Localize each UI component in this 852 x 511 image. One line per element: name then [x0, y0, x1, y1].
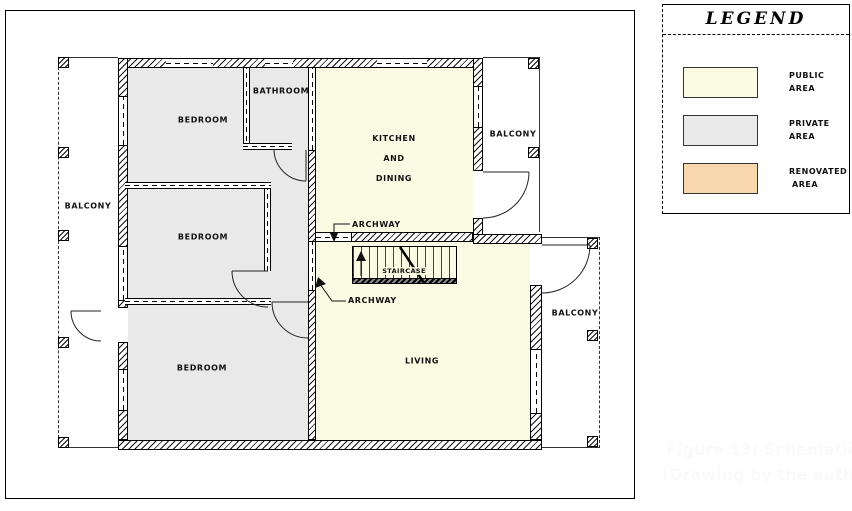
legend-item-public: PUBLIC AREA: [683, 67, 843, 99]
legend-swatch-public: [683, 67, 758, 98]
legend-label-line: PUBLIC: [789, 69, 824, 82]
door-swing-kitchen-balcony: [483, 172, 529, 218]
legend-label-line: AREA: [789, 82, 824, 95]
legend-swatch-private: [683, 115, 758, 146]
legend-box: LEGEND PUBLIC AREA PRIVATE AREA RENOVATE…: [662, 4, 850, 214]
legend-label-public: PUBLIC AREA: [789, 69, 824, 95]
archway-bottom-label: ARCHWAY: [348, 296, 397, 305]
archway-bottom-leader: [315, 277, 346, 301]
legend-item-renovated: RENOVATED AREA: [683, 163, 843, 195]
door-swing-balcony-left: [71, 311, 101, 341]
legend-label-line: AREA: [789, 178, 847, 191]
balcony-left-label: BALCONY: [65, 202, 112, 211]
legend-swatch-renovated: [683, 163, 758, 194]
door-swing-bedroom-middle: [232, 271, 268, 307]
floor-plan-figure: BEDROOM BEDROOM BEDROOM BATHROOM KITCHEN…: [0, 0, 852, 511]
room-label-bedroom-top: BEDROOM: [178, 116, 228, 125]
kitchen-label-line3: DINING: [372, 169, 416, 189]
room-label-bedroom-bottom: BEDROOM: [177, 364, 227, 373]
door-swing-bathroom: [274, 149, 306, 181]
figure-caption-line1: Figure 13: Schematic: [666, 440, 852, 459]
legend-label-renovated: RENOVATED AREA: [789, 165, 847, 191]
kitchen-label-line1: KITCHEN: [372, 129, 416, 149]
legend-label-line: PRIVATE: [789, 117, 830, 130]
room-label-kitchen: KITCHEN AND DINING: [372, 129, 416, 189]
kitchen-label-line2: AND: [372, 149, 416, 169]
balcony-bottom-right-label: BALCONY: [552, 309, 599, 318]
legend-title: LEGEND: [663, 5, 849, 35]
legend-item-private: PRIVATE AREA: [683, 115, 843, 147]
door-swing-living-balcony: [542, 245, 590, 293]
room-label-bathroom: BATHROOM: [253, 87, 309, 96]
room-label-bedroom-middle: BEDROOM: [178, 233, 228, 242]
figure-caption-line2: (Drawing by the auth: [662, 465, 852, 484]
room-label-living: LIVING: [405, 357, 439, 366]
archway-top-label: ARCHWAY: [352, 220, 401, 229]
balcony-top-right-label: BALCONY: [490, 130, 537, 139]
legend-label-line: AREA: [789, 130, 830, 143]
legend-label-line: RENOVATED: [789, 165, 847, 178]
archway-top-leader: [330, 224, 350, 242]
room-label-staircase: STAIRCASE: [381, 267, 427, 275]
door-swing-bedroom-bottom: [272, 302, 308, 338]
staircase-direction-marks: [356, 247, 424, 283]
legend-label-private: PRIVATE AREA: [789, 117, 830, 143]
